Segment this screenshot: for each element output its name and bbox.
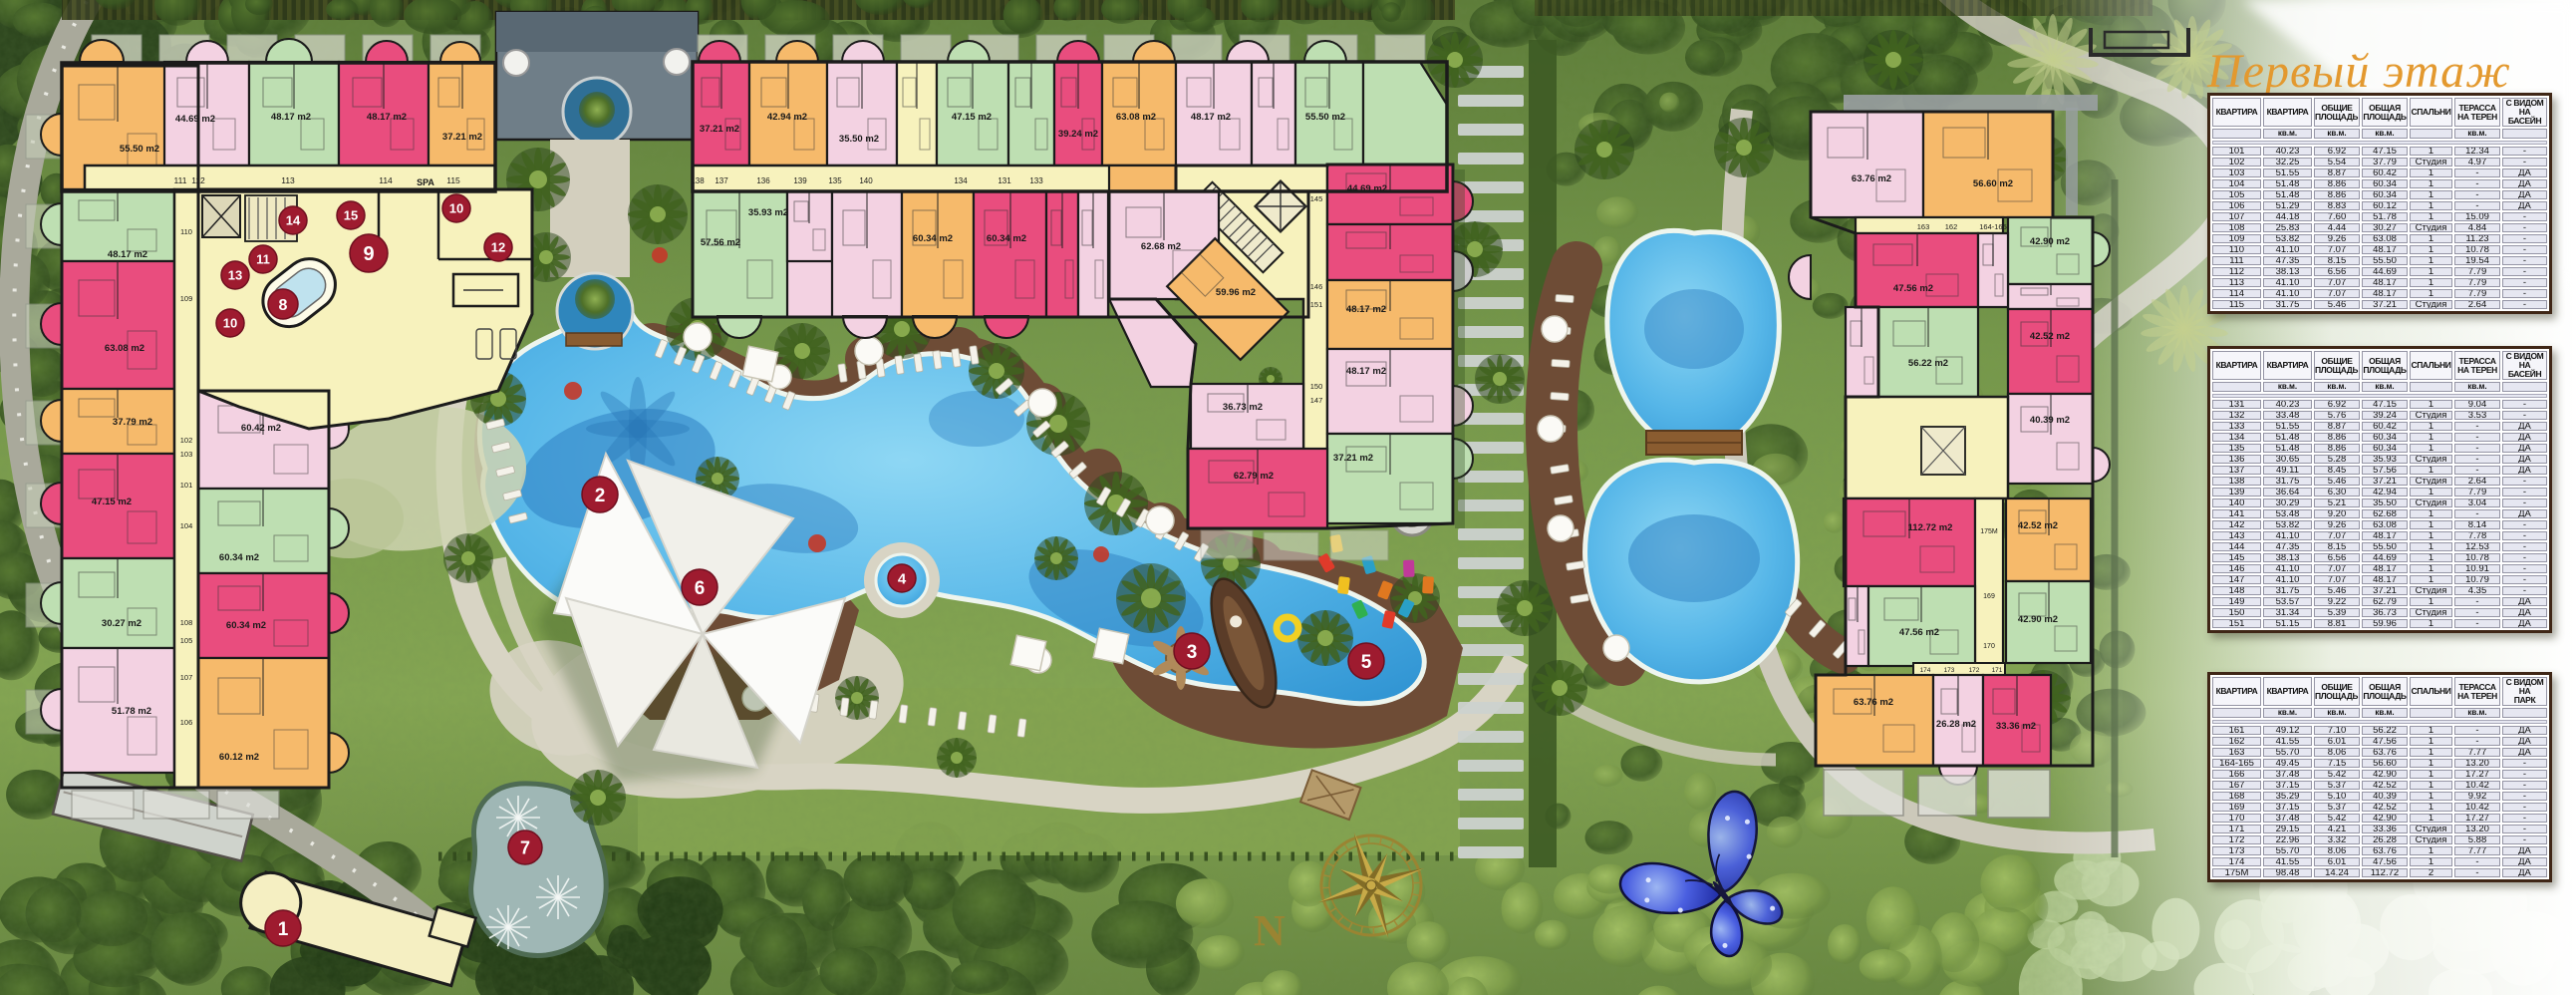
svg-text:5: 5 bbox=[1361, 652, 1372, 673]
svg-text:145: 145 bbox=[1310, 194, 1323, 203]
svg-text:113: 113 bbox=[281, 175, 295, 185]
svg-text:1: 1 bbox=[278, 919, 289, 940]
svg-text:133: 133 bbox=[1029, 176, 1043, 185]
svg-text:163: 163 bbox=[1917, 222, 1930, 231]
svg-text:110: 110 bbox=[180, 227, 192, 236]
svg-text:114: 114 bbox=[379, 175, 393, 185]
svg-text:55.50 m2: 55.50 m2 bbox=[120, 144, 159, 155]
svg-text:48.17 m2: 48.17 m2 bbox=[108, 249, 147, 260]
svg-text:102: 102 bbox=[180, 436, 193, 445]
svg-text:37.79 m2: 37.79 m2 bbox=[113, 417, 152, 428]
svg-text:3: 3 bbox=[1187, 642, 1198, 663]
svg-text:47.15 m2: 47.15 m2 bbox=[92, 497, 132, 507]
svg-text:10: 10 bbox=[449, 201, 463, 216]
svg-text:175M: 175M bbox=[1980, 528, 1998, 535]
svg-text:2: 2 bbox=[595, 486, 606, 506]
svg-text:109: 109 bbox=[180, 294, 193, 303]
svg-text:42.94 m2: 42.94 m2 bbox=[767, 112, 807, 123]
svg-text:140: 140 bbox=[859, 176, 873, 185]
svg-text:8: 8 bbox=[279, 297, 288, 314]
svg-text:60.34 m2: 60.34 m2 bbox=[987, 233, 1026, 244]
svg-text:115: 115 bbox=[446, 175, 460, 185]
svg-text:13: 13 bbox=[228, 268, 242, 283]
svg-text:37.21 m2: 37.21 m2 bbox=[1333, 453, 1373, 464]
svg-text:42.90 m2: 42.90 m2 bbox=[2018, 614, 2058, 625]
svg-text:42.52 m2: 42.52 m2 bbox=[2030, 331, 2070, 342]
svg-text:63.76 m2: 63.76 m2 bbox=[1852, 173, 1891, 184]
svg-text:63.08 m2: 63.08 m2 bbox=[1116, 112, 1156, 123]
svg-text:42.90 m2: 42.90 m2 bbox=[2030, 236, 2070, 247]
svg-text:134: 134 bbox=[954, 176, 968, 185]
svg-text:171: 171 bbox=[1992, 667, 2003, 674]
svg-text:103: 103 bbox=[180, 450, 193, 459]
svg-text:44.69 m2: 44.69 m2 bbox=[1347, 183, 1387, 194]
svg-text:11: 11 bbox=[256, 252, 270, 267]
svg-text:162: 162 bbox=[1945, 222, 1958, 231]
svg-text:111: 111 bbox=[174, 175, 187, 185]
svg-text:48.17 m2: 48.17 m2 bbox=[1346, 304, 1386, 315]
svg-text:14: 14 bbox=[286, 213, 301, 228]
svg-text:37.21 m2: 37.21 m2 bbox=[442, 132, 482, 143]
svg-text:47.56 m2: 47.56 m2 bbox=[1899, 627, 1939, 638]
svg-text:55.50 m2: 55.50 m2 bbox=[1305, 112, 1345, 123]
svg-text:4: 4 bbox=[898, 570, 907, 587]
svg-text:36.73 m2: 36.73 m2 bbox=[1223, 402, 1263, 413]
svg-text:173: 173 bbox=[1944, 667, 1955, 674]
svg-text:48.17 m2: 48.17 m2 bbox=[271, 112, 311, 123]
svg-text:104: 104 bbox=[180, 521, 193, 530]
svg-text:174: 174 bbox=[1920, 667, 1931, 674]
svg-text:40.39 m2: 40.39 m2 bbox=[2030, 415, 2070, 426]
svg-text:48.17 m2: 48.17 m2 bbox=[1191, 112, 1231, 123]
svg-text:108: 108 bbox=[180, 618, 193, 627]
svg-text:170: 170 bbox=[1983, 643, 1995, 650]
svg-text:6: 6 bbox=[695, 578, 706, 599]
svg-text:106: 106 bbox=[180, 718, 193, 727]
svg-text:151: 151 bbox=[1310, 300, 1323, 309]
svg-text:150: 150 bbox=[1310, 382, 1323, 391]
svg-text:101: 101 bbox=[180, 481, 193, 490]
svg-text:37.21 m2: 37.21 m2 bbox=[700, 124, 739, 135]
svg-text:30.27 m2: 30.27 m2 bbox=[102, 618, 142, 629]
svg-text:107: 107 bbox=[180, 673, 193, 682]
svg-text:33.36 m2: 33.36 m2 bbox=[1996, 721, 2036, 732]
svg-text:SPA: SPA bbox=[417, 177, 434, 187]
svg-text:146: 146 bbox=[1310, 282, 1323, 291]
svg-text:112.72 m2: 112.72 m2 bbox=[1908, 522, 1953, 533]
svg-text:42.52 m2: 42.52 m2 bbox=[2018, 520, 2058, 531]
svg-text:56.60 m2: 56.60 m2 bbox=[1973, 178, 2013, 189]
svg-text:147: 147 bbox=[1310, 396, 1323, 405]
svg-text:51.78 m2: 51.78 m2 bbox=[112, 706, 151, 717]
svg-text:60.34 m2: 60.34 m2 bbox=[219, 552, 259, 563]
svg-text:47.56 m2: 47.56 m2 bbox=[1893, 283, 1933, 294]
svg-text:164-165: 164-165 bbox=[1979, 222, 2007, 231]
svg-text:26.28 m2: 26.28 m2 bbox=[1936, 719, 1976, 730]
svg-text:48.17 m2: 48.17 m2 bbox=[367, 112, 407, 123]
svg-text:9: 9 bbox=[363, 243, 374, 265]
svg-text:60.12 m2: 60.12 m2 bbox=[219, 752, 259, 763]
svg-text:35.50 m2: 35.50 m2 bbox=[839, 134, 879, 145]
svg-text:169: 169 bbox=[1983, 593, 1995, 600]
svg-text:44.69 m2: 44.69 m2 bbox=[175, 114, 215, 125]
svg-text:47.15 m2: 47.15 m2 bbox=[952, 112, 992, 123]
svg-text:137: 137 bbox=[715, 176, 728, 185]
svg-text:7: 7 bbox=[520, 837, 530, 857]
svg-text:62.79 m2: 62.79 m2 bbox=[1234, 471, 1274, 482]
svg-text:172: 172 bbox=[1969, 667, 1980, 674]
svg-text:60.42 m2: 60.42 m2 bbox=[241, 423, 281, 434]
svg-text:35.93 m2: 35.93 m2 bbox=[748, 207, 788, 218]
svg-text:57.56 m2: 57.56 m2 bbox=[701, 237, 740, 248]
svg-text:105: 105 bbox=[180, 636, 193, 645]
svg-text:63.76 m2: 63.76 m2 bbox=[1854, 697, 1893, 708]
svg-text:39.24 m2: 39.24 m2 bbox=[1058, 129, 1098, 140]
svg-text:135: 135 bbox=[828, 176, 842, 185]
svg-text:136: 136 bbox=[756, 176, 770, 185]
svg-text:63.08 m2: 63.08 m2 bbox=[105, 343, 144, 354]
svg-text:59.96 m2: 59.96 m2 bbox=[1216, 287, 1256, 298]
svg-text:N: N bbox=[1254, 906, 1286, 955]
svg-text:48.17 m2: 48.17 m2 bbox=[1346, 366, 1386, 377]
svg-text:60.34 m2: 60.34 m2 bbox=[913, 233, 953, 244]
svg-text:139: 139 bbox=[793, 176, 807, 185]
svg-text:62.68 m2: 62.68 m2 bbox=[1141, 241, 1181, 252]
svg-text:12: 12 bbox=[491, 240, 505, 255]
svg-text:10: 10 bbox=[223, 316, 237, 331]
svg-text:56.22 m2: 56.22 m2 bbox=[1908, 358, 1948, 369]
svg-text:131: 131 bbox=[998, 176, 1011, 185]
svg-text:15: 15 bbox=[344, 208, 358, 223]
svg-text:60.34 m2: 60.34 m2 bbox=[226, 620, 266, 631]
